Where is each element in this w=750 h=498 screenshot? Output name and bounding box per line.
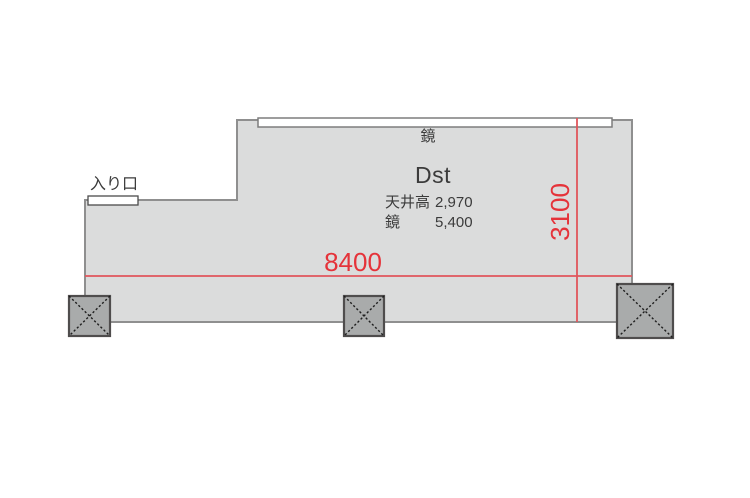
column-right [617,284,673,338]
room-specs: 天井高 2,970 鏡 5,400 [385,193,473,233]
floorplan-canvas: 入り口 鏡 Dst 天井高 2,970 鏡 5,400 8400 3100 [0,0,750,498]
entrance-door [88,196,138,205]
depth-dimension-text: 3100 [547,183,573,241]
spec-mirror-width-value: 5,400 [435,213,473,233]
room-name: Dst [415,162,451,190]
spec-ceiling-height-label: 天井高 [385,193,435,213]
column-left [69,296,110,336]
entrance-label: 入り口 [90,175,138,194]
spec-ceiling-height-value: 2,970 [435,193,473,213]
column-center [344,296,384,336]
spec-ceiling-height: 天井高 2,970 [385,193,473,213]
spec-mirror-width: 鏡 5,400 [385,213,473,233]
width-dimension-text: 8400 [303,249,403,275]
spec-mirror-width-label: 鏡 [385,213,435,233]
mirror-label: 鏡 [398,128,458,146]
mirror-strip [258,118,612,127]
